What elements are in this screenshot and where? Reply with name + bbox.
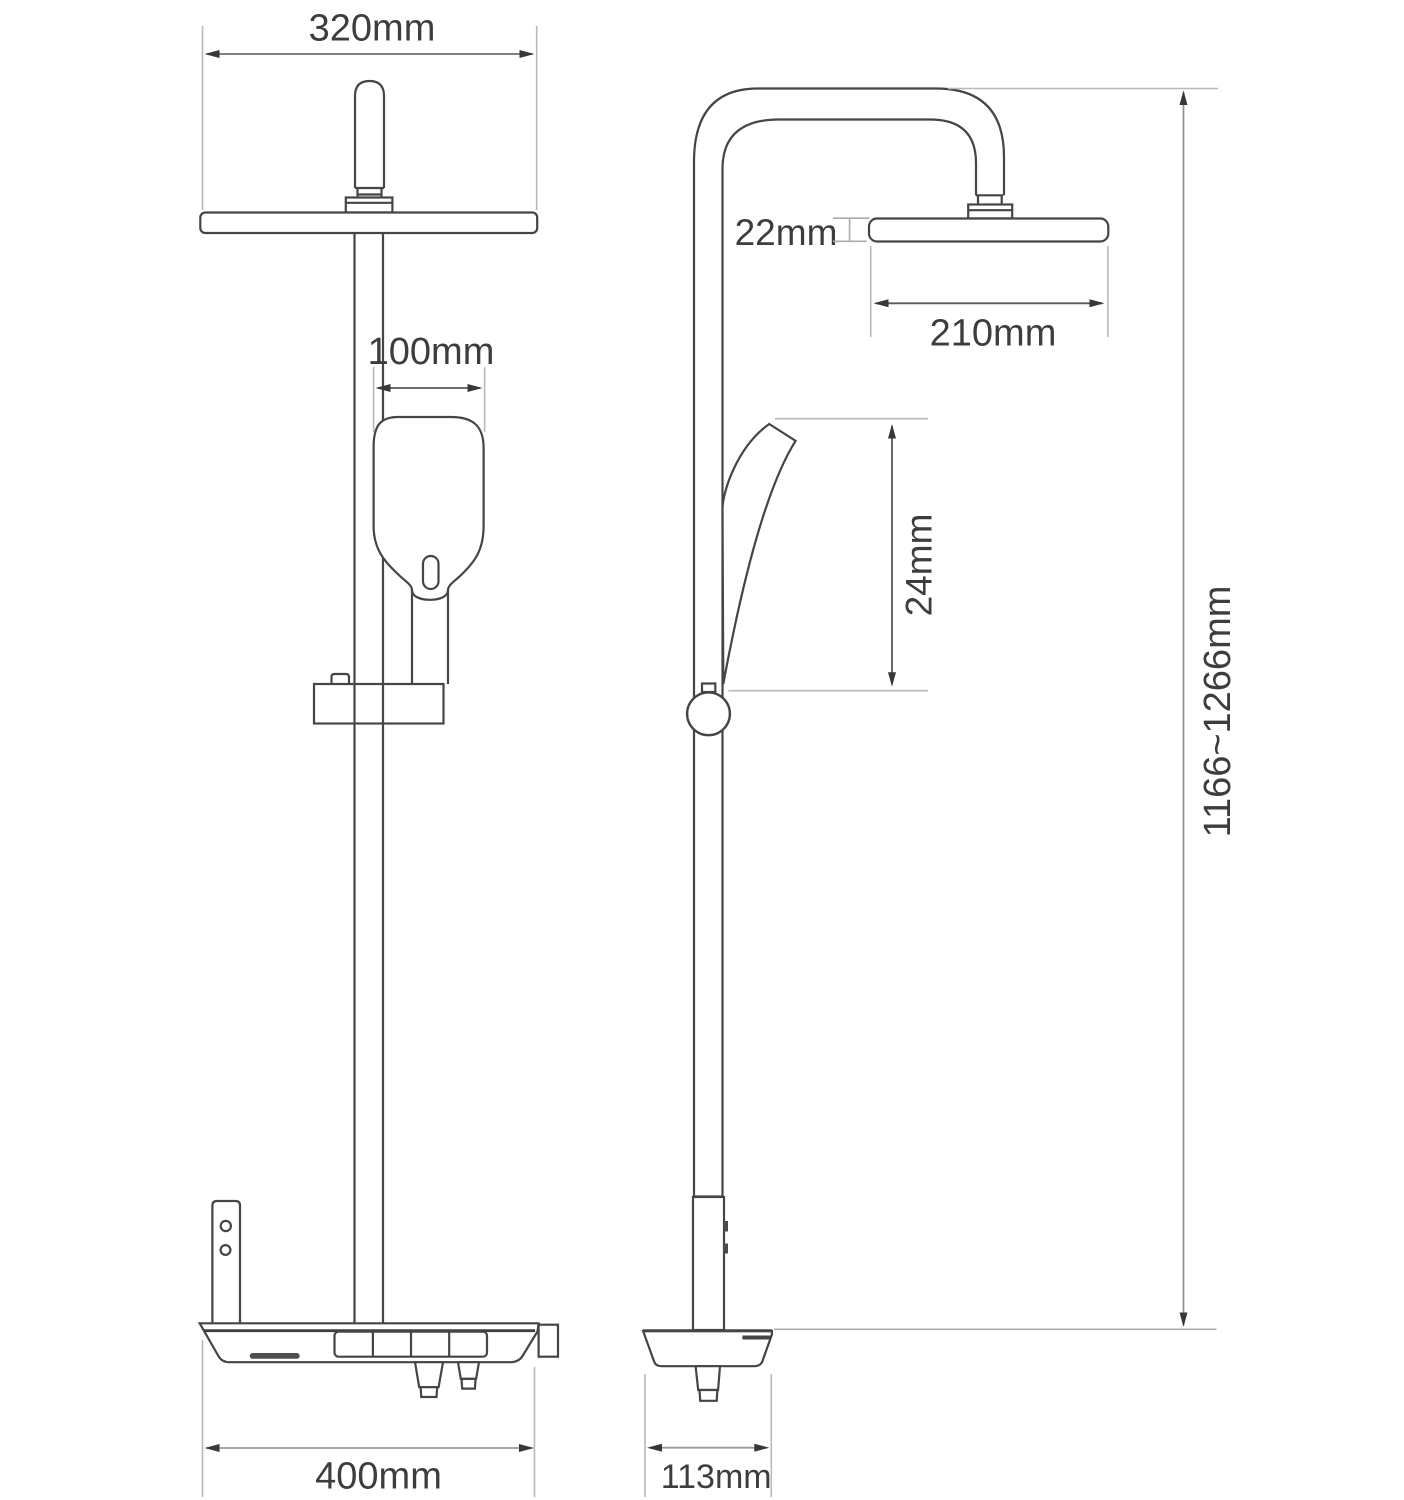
svg-text:1166~1266mm: 1166~1266mm <box>1197 586 1239 838</box>
svg-text:113mm: 113mm <box>661 1458 772 1496</box>
svg-text:100mm: 100mm <box>368 331 495 373</box>
svg-text:24mm: 24mm <box>899 514 940 617</box>
svg-text:210mm: 210mm <box>930 313 1057 355</box>
svg-text:320mm: 320mm <box>309 8 436 50</box>
svg-text:22mm: 22mm <box>735 212 838 253</box>
svg-text:400mm: 400mm <box>315 1456 442 1498</box>
